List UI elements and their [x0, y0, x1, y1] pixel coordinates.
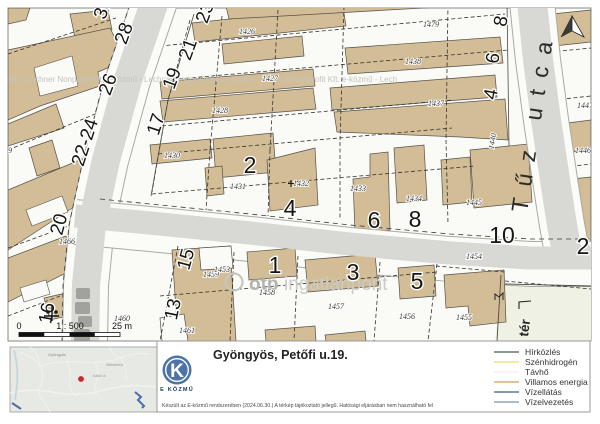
svg-text:1457: 1457: [328, 302, 345, 311]
svg-text:1445: 1445: [466, 198, 482, 207]
svg-text:1432: 1432: [293, 179, 309, 188]
svg-text:10: 10: [489, 222, 515, 248]
svg-text:1455: 1455: [456, 313, 472, 322]
svg-text:1454: 1454: [466, 252, 482, 261]
svg-text:Villamos energia: Villamos energia: [525, 377, 588, 387]
svg-text:2: 2: [244, 152, 257, 178]
svg-text:1453: 1453: [214, 265, 230, 274]
svg-text:Szénhidrogén: Szénhidrogén: [525, 357, 578, 367]
svg-text:K: K: [170, 361, 184, 382]
svg-text:mű - Lechner Nonprofit Kft.: mű - Lechner Nonprofit Kft. e-közmű - Le…: [8, 75, 397, 84]
svg-text:1428: 1428: [212, 106, 228, 115]
svg-text:6: 6: [368, 207, 381, 233]
svg-text:1426: 1426: [239, 27, 255, 36]
svg-text:Távhő: Távhő: [525, 367, 549, 377]
svg-text:1433: 1433: [350, 184, 366, 193]
svg-text:1430: 1430: [164, 151, 180, 160]
svg-text:Készült az E-közmű rendszerébe: Készült az E-közmű rendszerében (2024.06…: [162, 403, 433, 409]
svg-text:2: 2: [577, 233, 590, 259]
svg-text:3: 3: [347, 259, 360, 285]
svg-text:9: 9: [8, 146, 12, 155]
svg-text:1456: 1456: [399, 312, 415, 321]
svg-text:1466: 1466: [59, 237, 75, 246]
svg-text:1458: 1458: [259, 288, 275, 297]
svg-text:25 m: 25 m: [112, 321, 132, 331]
svg-text:ingatlanpont: ingatlanpont: [284, 274, 388, 295]
svg-text:Mátrafüred: Mátrafüred: [106, 363, 123, 367]
svg-text:1479: 1479: [423, 20, 439, 29]
svg-text:1 : 500: 1 : 500: [56, 321, 84, 331]
svg-text:0: 0: [16, 321, 21, 331]
svg-text:Vízelvezetés: Vízelvezetés: [525, 397, 573, 407]
svg-text:1434: 1434: [406, 194, 422, 203]
svg-text:8: 8: [409, 206, 422, 232]
svg-text:13: 13: [161, 297, 186, 322]
svg-text:1446: 1446: [575, 146, 591, 155]
svg-text:1437: 1437: [428, 99, 445, 108]
svg-text:Hírközlés: Hírközlés: [525, 347, 560, 357]
svg-text:5: 5: [411, 268, 424, 294]
svg-text:1427: 1427: [262, 74, 279, 83]
svg-text:tér: tér: [516, 318, 533, 338]
svg-text:1: 1: [269, 252, 282, 278]
svg-text:Vízellátás: Vízellátás: [525, 387, 562, 397]
svg-text:1461: 1461: [179, 326, 195, 335]
svg-text:1431: 1431: [230, 182, 246, 191]
svg-text:1438: 1438: [405, 57, 421, 66]
svg-text:E KÖZMŰ: E KÖZMŰ: [160, 386, 194, 393]
svg-text:Kállói út: Kállói út: [93, 374, 105, 378]
svg-text:4: 4: [284, 195, 297, 221]
svg-text:Gyöngyös: Gyöngyös: [48, 352, 66, 357]
svg-text:Gyöngyös, Petőfi u.19.: Gyöngyös, Petőfi u.19.: [213, 348, 348, 362]
